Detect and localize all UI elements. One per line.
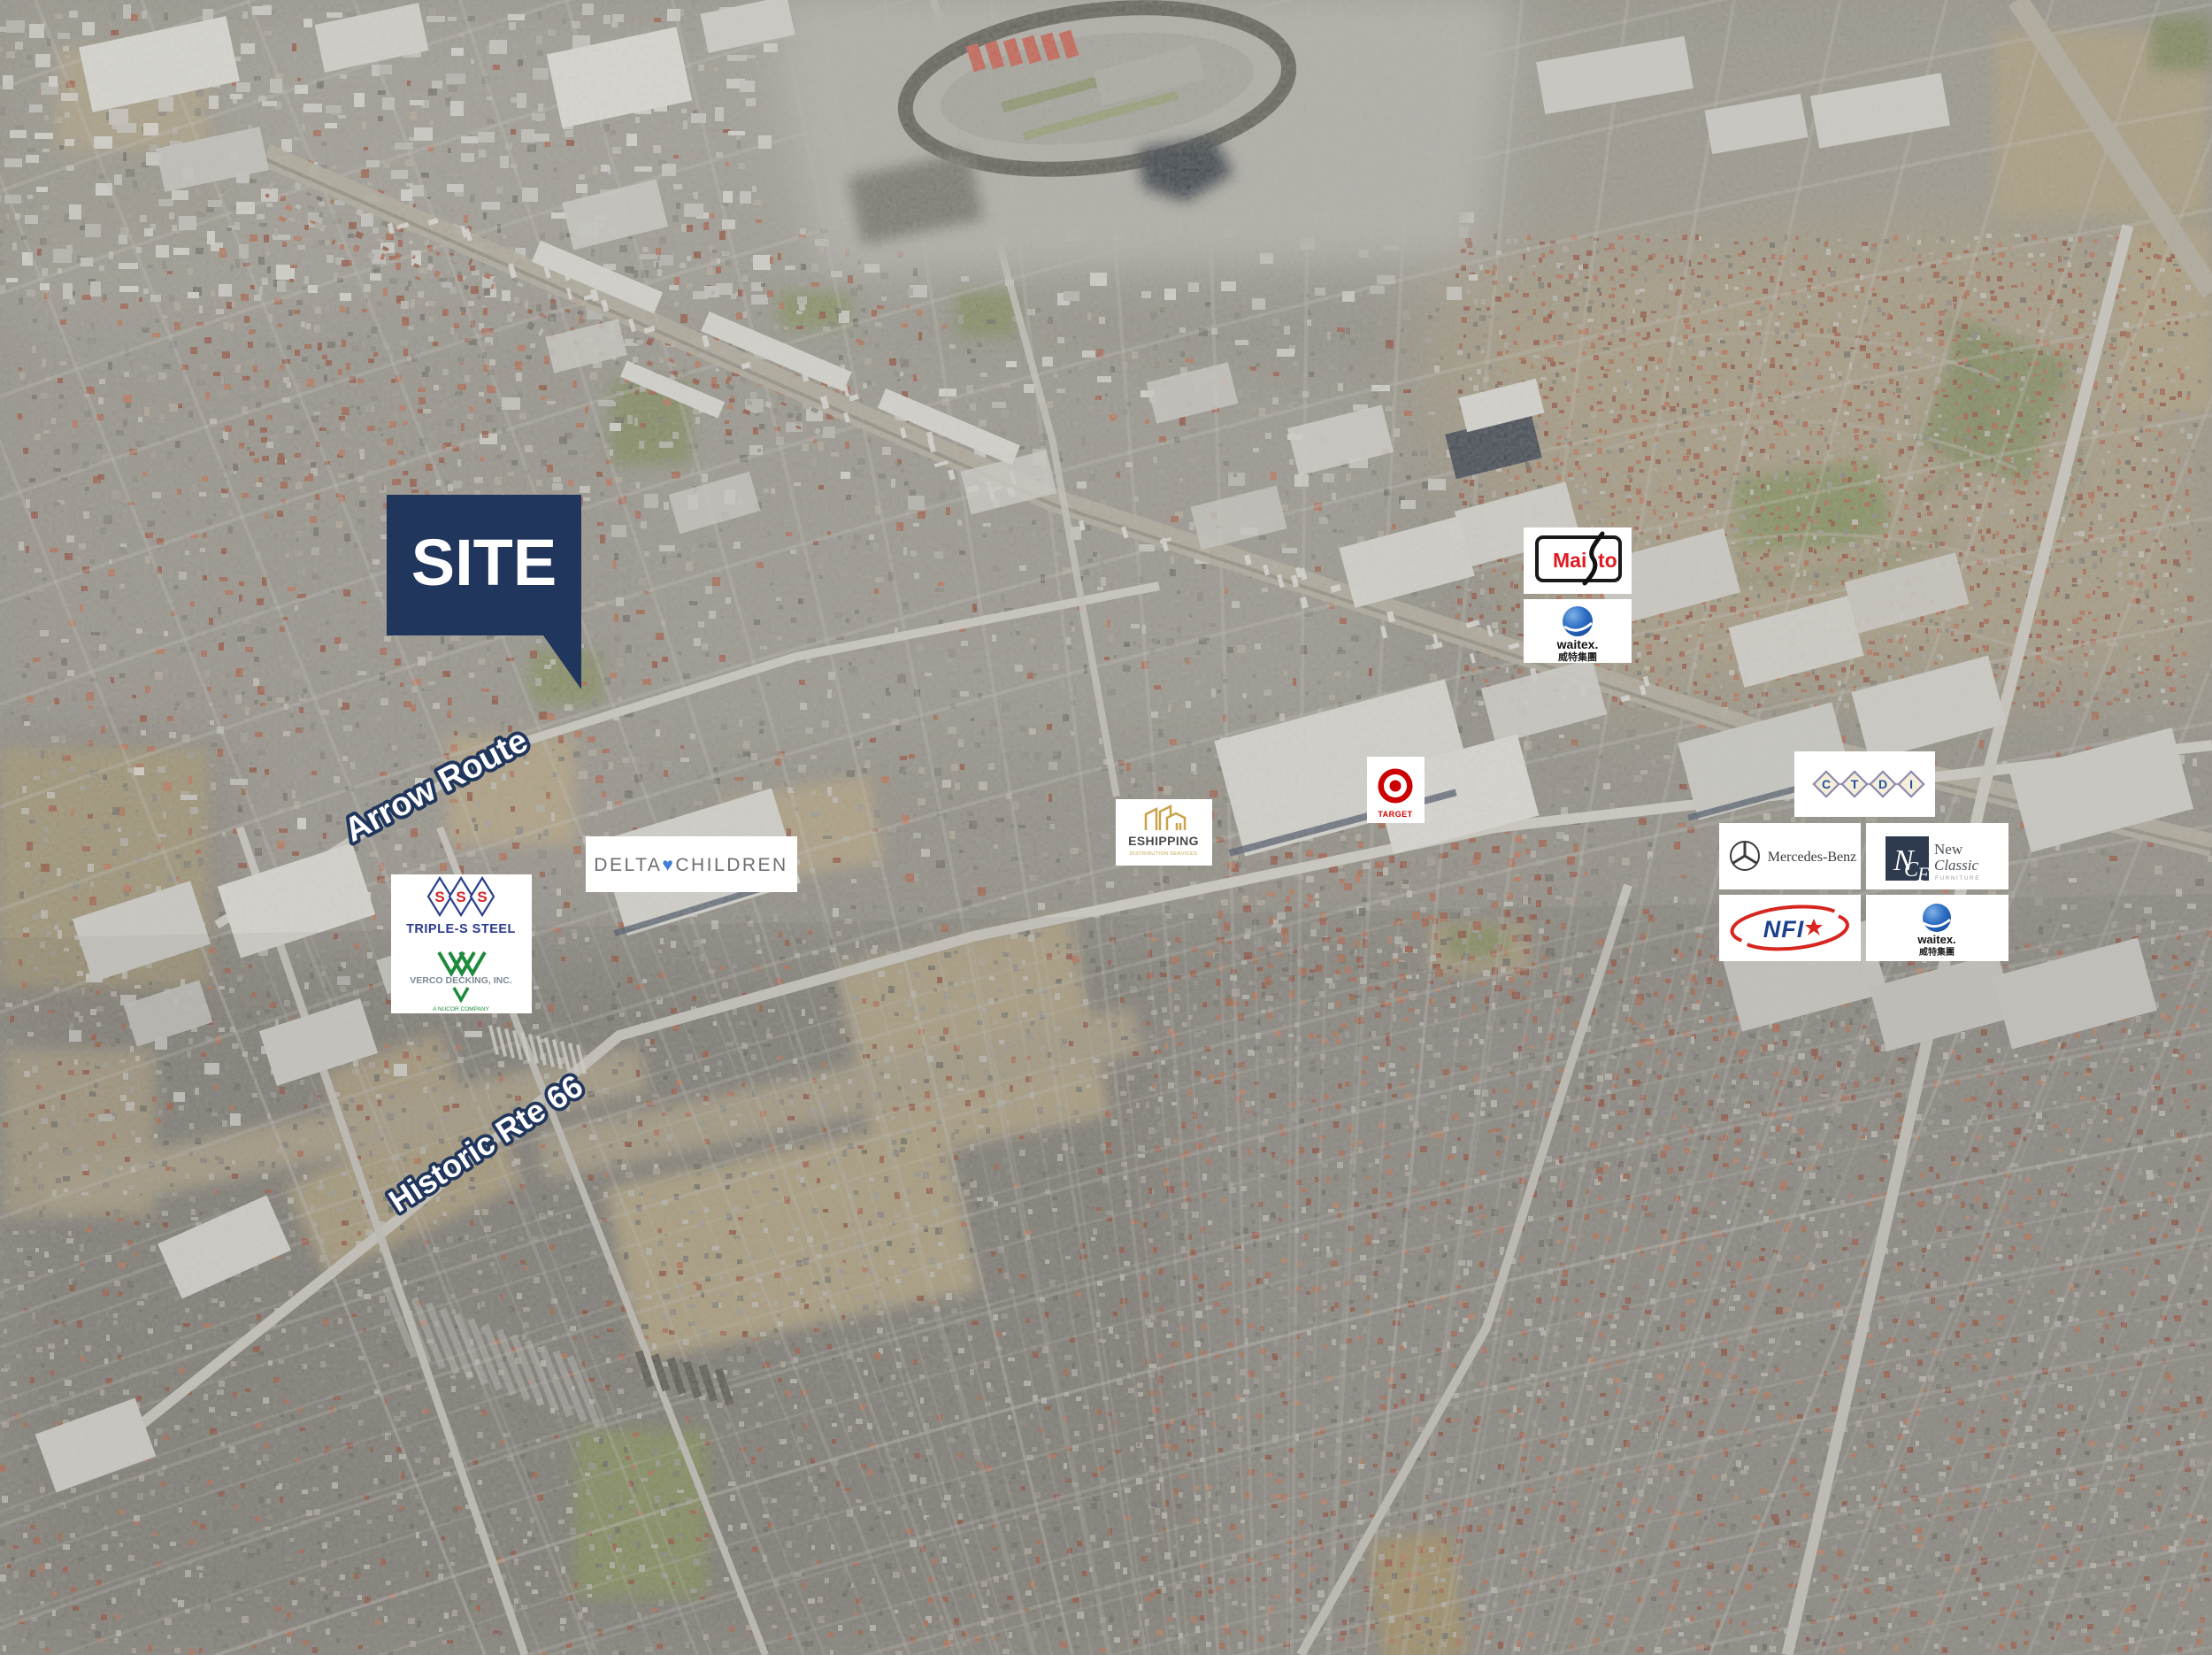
svg-text:waitex.: waitex.	[1916, 933, 1955, 946]
svg-text:New: New	[1934, 841, 1963, 858]
svg-text:A NUCOR COMPANY: A NUCOR COMPANY	[433, 1006, 489, 1012]
svg-text:DISTRIBUTION SERVICES: DISTRIBUTION SERVICES	[1130, 851, 1197, 857]
svg-text:ESHIPPING: ESHIPPING	[1128, 834, 1199, 848]
svg-text:waitex.: waitex.	[1556, 637, 1599, 651]
svg-text:S: S	[477, 889, 487, 905]
svg-text:TRIPLE-S STEEL: TRIPLE-S STEEL	[406, 922, 516, 936]
svg-text:D: D	[1878, 777, 1887, 791]
svg-text:I: I	[1909, 777, 1913, 791]
svg-text:F: F	[1916, 863, 1930, 885]
svg-text:S: S	[434, 889, 444, 905]
svg-text:DELTA♥CHILDREN: DELTA♥CHILDREN	[594, 855, 787, 875]
svg-text:Mercedes-Benz: Mercedes-Benz	[1768, 850, 1856, 865]
svg-text:C: C	[1822, 777, 1831, 791]
svg-text:SITE: SITE	[411, 526, 557, 599]
svg-text:FURNITURE: FURNITURE	[1935, 875, 1980, 881]
svg-text:to: to	[1598, 549, 1617, 572]
svg-text:T: T	[1851, 777, 1859, 791]
svg-text:VERCO DECKING, INC.: VERCO DECKING, INC.	[410, 975, 512, 986]
svg-text:Mai: Mai	[1553, 549, 1586, 572]
svg-text:NFI: NFI	[1763, 916, 1805, 943]
svg-text:Classic: Classic	[1934, 857, 1979, 874]
svg-text:TARGET: TARGET	[1378, 810, 1412, 819]
svg-text:威特集團: 威特集團	[1919, 946, 1955, 958]
svg-text:S: S	[456, 889, 465, 905]
svg-text:威特集團: 威特集團	[1558, 650, 1597, 663]
